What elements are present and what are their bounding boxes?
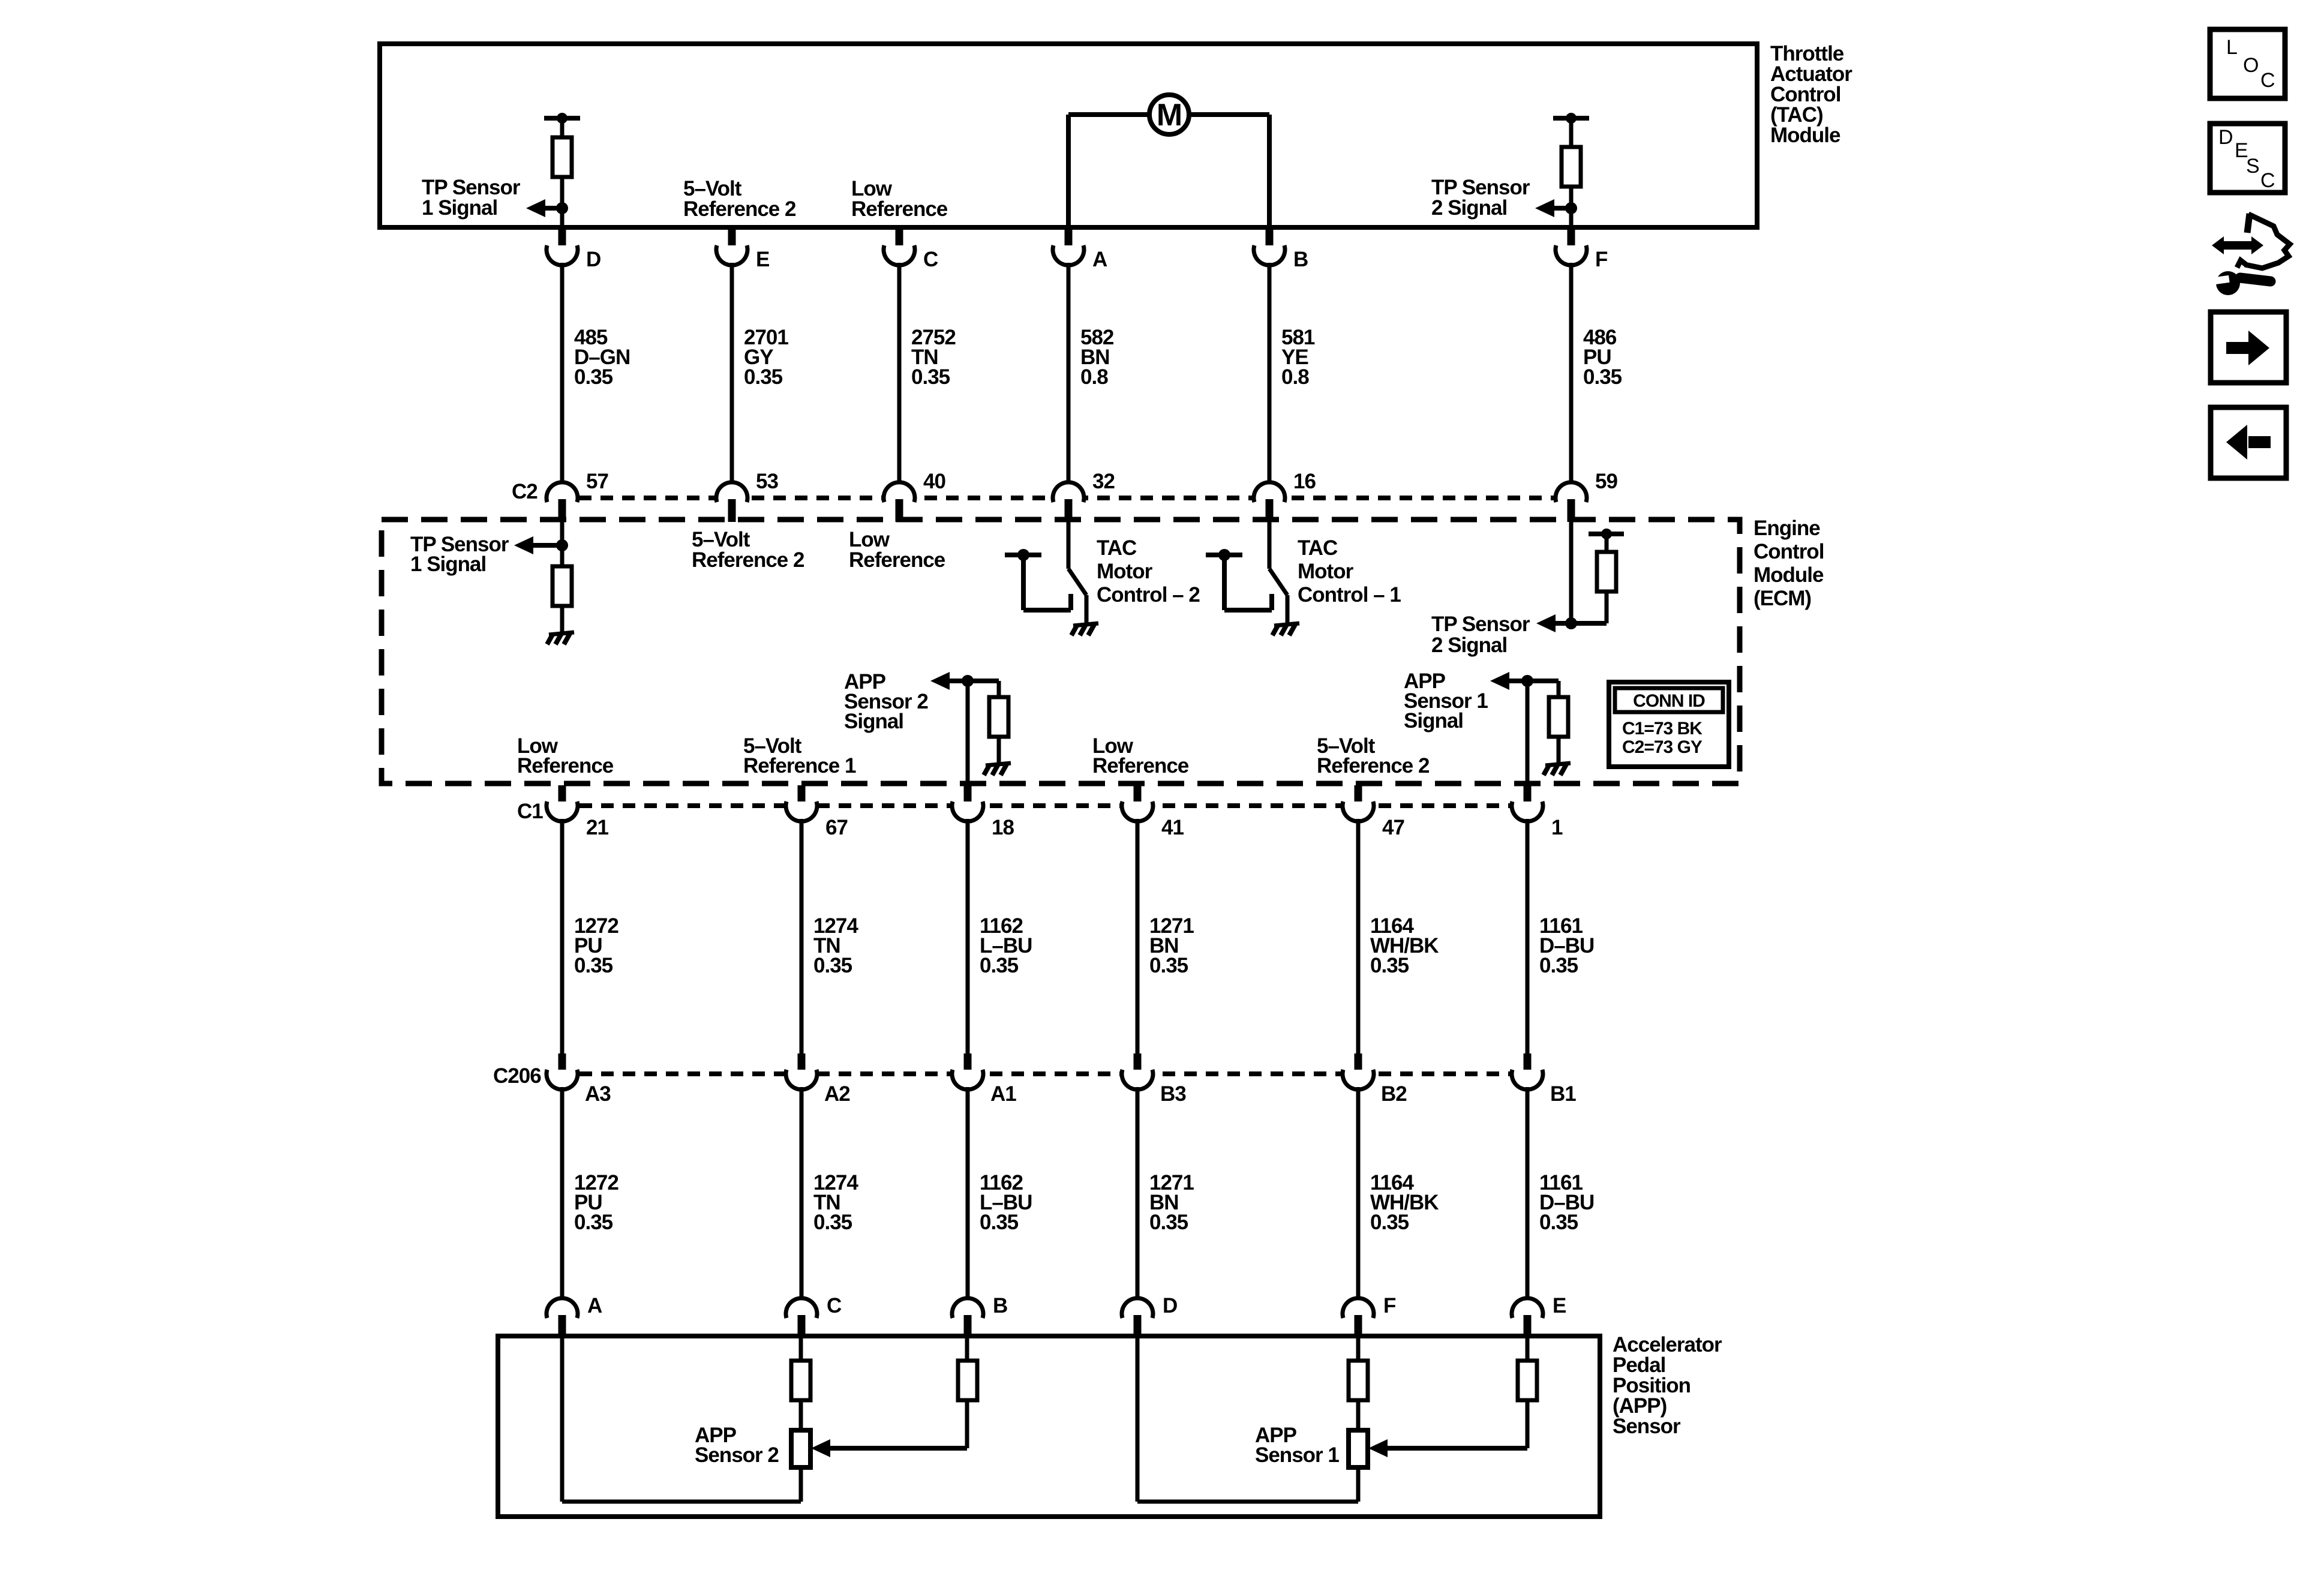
svg-text:E: E (1553, 1294, 1566, 1317)
svg-text:0.8: 0.8 (1281, 365, 1309, 389)
svg-text:Module: Module (1770, 124, 1840, 147)
svg-text:0.35: 0.35 (1583, 365, 1622, 389)
svg-text:B2: B2 (1381, 1082, 1407, 1106)
svg-text:1 Signal: 1 Signal (410, 553, 486, 576)
svg-text:Control – 2: Control – 2 (1097, 583, 1200, 607)
svg-text:C: C (2260, 69, 2275, 92)
svg-text:B: B (1293, 248, 1308, 271)
svg-text:TP Sensor: TP Sensor (1431, 613, 1530, 636)
svg-text:(ECM): (ECM) (1753, 587, 1811, 610)
svg-text:B1: B1 (1550, 1082, 1576, 1106)
svg-text:32: 32 (1092, 470, 1115, 493)
svg-text:C: C (923, 248, 938, 271)
svg-text:0.35: 0.35 (744, 365, 783, 389)
svg-text:C2: C2 (512, 480, 538, 503)
svg-text:0.35: 0.35 (911, 365, 950, 389)
svg-text:Sensor 2: Sensor 2 (695, 1443, 779, 1467)
svg-text:Signal: Signal (844, 710, 903, 733)
svg-text:16: 16 (1293, 470, 1316, 493)
svg-text:L: L (2226, 36, 2237, 59)
svg-text:Reference: Reference (849, 548, 945, 572)
svg-text:53: 53 (756, 470, 778, 493)
svg-text:TAC: TAC (1298, 536, 1338, 560)
svg-text:M: M (1157, 98, 1182, 133)
svg-text:Control: Control (1753, 540, 1824, 563)
svg-text:47: 47 (1382, 816, 1404, 839)
svg-text:0.35: 0.35 (1149, 1211, 1188, 1234)
svg-text:57: 57 (586, 470, 608, 493)
svg-text:C2=73 GY: C2=73 GY (1622, 737, 1703, 757)
svg-text:41: 41 (1161, 816, 1184, 839)
svg-text:2 Signal: 2 Signal (1431, 196, 1507, 220)
svg-text:S: S (2246, 155, 2259, 178)
svg-text:Reference 2: Reference 2 (692, 548, 804, 572)
svg-text:CONN ID: CONN ID (1633, 691, 1705, 711)
svg-text:21: 21 (586, 816, 608, 839)
svg-text:Signal: Signal (1404, 709, 1463, 733)
svg-text:F: F (1383, 1294, 1396, 1317)
svg-text:40: 40 (923, 470, 945, 493)
svg-text:59: 59 (1595, 470, 1617, 493)
svg-text:C: C (827, 1294, 842, 1317)
svg-text:E: E (756, 248, 769, 271)
svg-text:B: B (993, 1294, 1007, 1317)
svg-text:0.35: 0.35 (1370, 1211, 1409, 1234)
svg-text:0.35: 0.35 (980, 954, 1019, 977)
svg-text:Sensor 1: Sensor 1 (1255, 1443, 1339, 1467)
svg-text:1: 1 (1551, 816, 1563, 839)
svg-text:C1=73 BK: C1=73 BK (1622, 719, 1703, 739)
svg-text:C: C (2260, 169, 2275, 192)
svg-text:Reference: Reference (517, 754, 614, 778)
svg-text:67: 67 (825, 816, 848, 839)
svg-text:0.35: 0.35 (1539, 1211, 1578, 1234)
svg-text:A: A (587, 1294, 602, 1317)
svg-text:D: D (586, 248, 600, 271)
svg-text:TAC: TAC (1097, 536, 1137, 560)
svg-text:1 Signal: 1 Signal (422, 196, 497, 220)
svg-text:A: A (1092, 248, 1107, 271)
svg-text:18: 18 (992, 816, 1014, 839)
svg-text:C206: C206 (493, 1064, 541, 1088)
svg-text:0.35: 0.35 (1370, 954, 1409, 977)
svg-text:Reference: Reference (1092, 754, 1189, 778)
svg-text:B3: B3 (1160, 1082, 1186, 1106)
svg-text:Reference 2: Reference 2 (683, 197, 796, 221)
svg-text:Module: Module (1753, 563, 1824, 587)
svg-text:0.35: 0.35 (1539, 954, 1578, 977)
svg-text:D: D (2218, 126, 2233, 149)
svg-text:0.35: 0.35 (813, 1211, 852, 1234)
svg-text:0.35: 0.35 (980, 1211, 1019, 1234)
svg-text:Reference 2: Reference 2 (1317, 754, 1430, 778)
svg-text:0.35: 0.35 (574, 954, 613, 977)
svg-text:A2: A2 (824, 1082, 850, 1106)
svg-text:Engine: Engine (1753, 517, 1820, 540)
svg-text:Motor: Motor (1097, 560, 1153, 583)
svg-text:0.35: 0.35 (1149, 954, 1188, 977)
svg-text:A1: A1 (990, 1082, 1016, 1106)
svg-text:0.35: 0.35 (574, 365, 613, 389)
svg-text:C1: C1 (517, 800, 543, 823)
svg-text:Reference: Reference (851, 197, 948, 221)
svg-text:Control – 1: Control – 1 (1298, 583, 1401, 607)
svg-text:F: F (1595, 248, 1608, 271)
svg-text:O: O (2243, 54, 2258, 77)
svg-text:D: D (1163, 1294, 1177, 1317)
svg-text:0.35: 0.35 (574, 1211, 613, 1234)
svg-text:0.35: 0.35 (813, 954, 852, 977)
svg-text:0.8: 0.8 (1080, 365, 1108, 389)
svg-text:Reference 1: Reference 1 (743, 754, 856, 778)
svg-text:Sensor: Sensor (1613, 1415, 1681, 1438)
svg-text:Motor: Motor (1298, 560, 1354, 583)
svg-text:2 Signal: 2 Signal (1431, 634, 1507, 657)
svg-text:A3: A3 (585, 1082, 611, 1106)
